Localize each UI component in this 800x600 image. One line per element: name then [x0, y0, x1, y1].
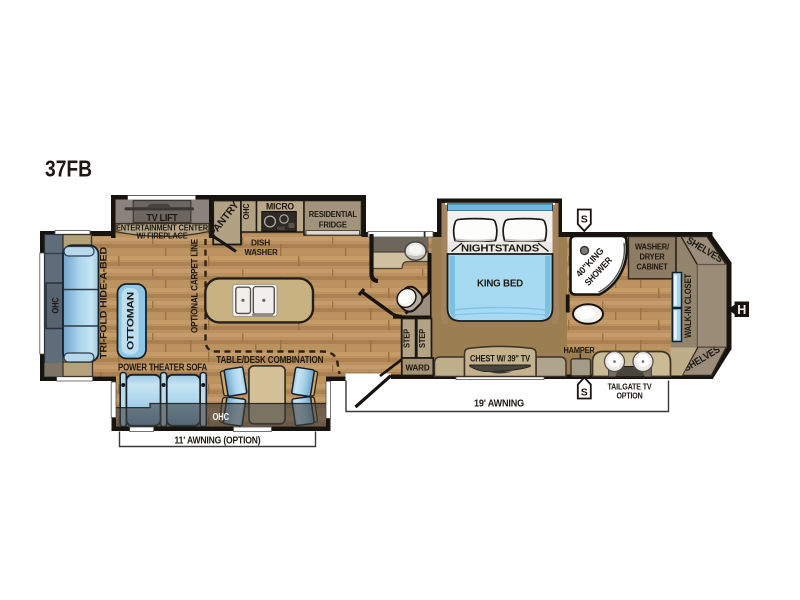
- svg-text:MICRO: MICRO: [266, 202, 294, 212]
- svg-text:WASHER/: WASHER/: [635, 242, 670, 252]
- svg-text:OHC: OHC: [213, 411, 230, 423]
- svg-text:19' AWNING: 19' AWNING: [474, 399, 524, 410]
- svg-text:OPTIONAL CARPET LINE: OPTIONAL CARPET LINE: [189, 239, 200, 333]
- svg-text:HAMPER: HAMPER: [564, 345, 596, 355]
- svg-text:FRIDGE: FRIDGE: [319, 220, 347, 230]
- svg-text:WARD: WARD: [406, 363, 430, 373]
- svg-text:S: S: [581, 387, 588, 399]
- svg-text:OHC: OHC: [51, 297, 61, 314]
- svg-text:OHC: OHC: [241, 203, 251, 219]
- svg-text:NIGHTSTANDS: NIGHTSTANDS: [461, 244, 540, 255]
- svg-text:OTTOMAN: OTTOMAN: [126, 292, 136, 350]
- svg-text:TRI-FOLD HIDE-A-BED: TRI-FOLD HIDE-A-BED: [98, 247, 109, 359]
- svg-text:STEP: STEP: [417, 328, 427, 348]
- svg-text:CHEST W/ 39" TV: CHEST W/ 39" TV: [470, 354, 530, 364]
- svg-text:W/ FIREPLACE: W/ FIREPLACE: [137, 230, 189, 240]
- svg-text:RESIDENTIAL: RESIDENTIAL: [309, 209, 357, 219]
- svg-text:11' AWNING (OPTION): 11' AWNING (OPTION): [175, 436, 261, 447]
- svg-text:OPTION: OPTION: [617, 391, 643, 401]
- svg-text:STEP: STEP: [402, 328, 412, 348]
- svg-text:DISH: DISH: [251, 238, 270, 248]
- svg-text:37FB: 37FB: [45, 156, 92, 182]
- svg-text:S: S: [581, 214, 588, 226]
- svg-text:DRYER: DRYER: [640, 252, 666, 262]
- svg-text:CABINET: CABINET: [637, 262, 669, 272]
- svg-text:WALK-IN CLOSET: WALK-IN CLOSET: [683, 274, 694, 338]
- svg-text:H: H: [737, 303, 746, 317]
- svg-text:TABLE/DESK COMBINATION: TABLE/DESK COMBINATION: [216, 355, 323, 366]
- svg-text:WASHER: WASHER: [245, 247, 279, 257]
- svg-text:KING BED: KING BED: [477, 279, 523, 290]
